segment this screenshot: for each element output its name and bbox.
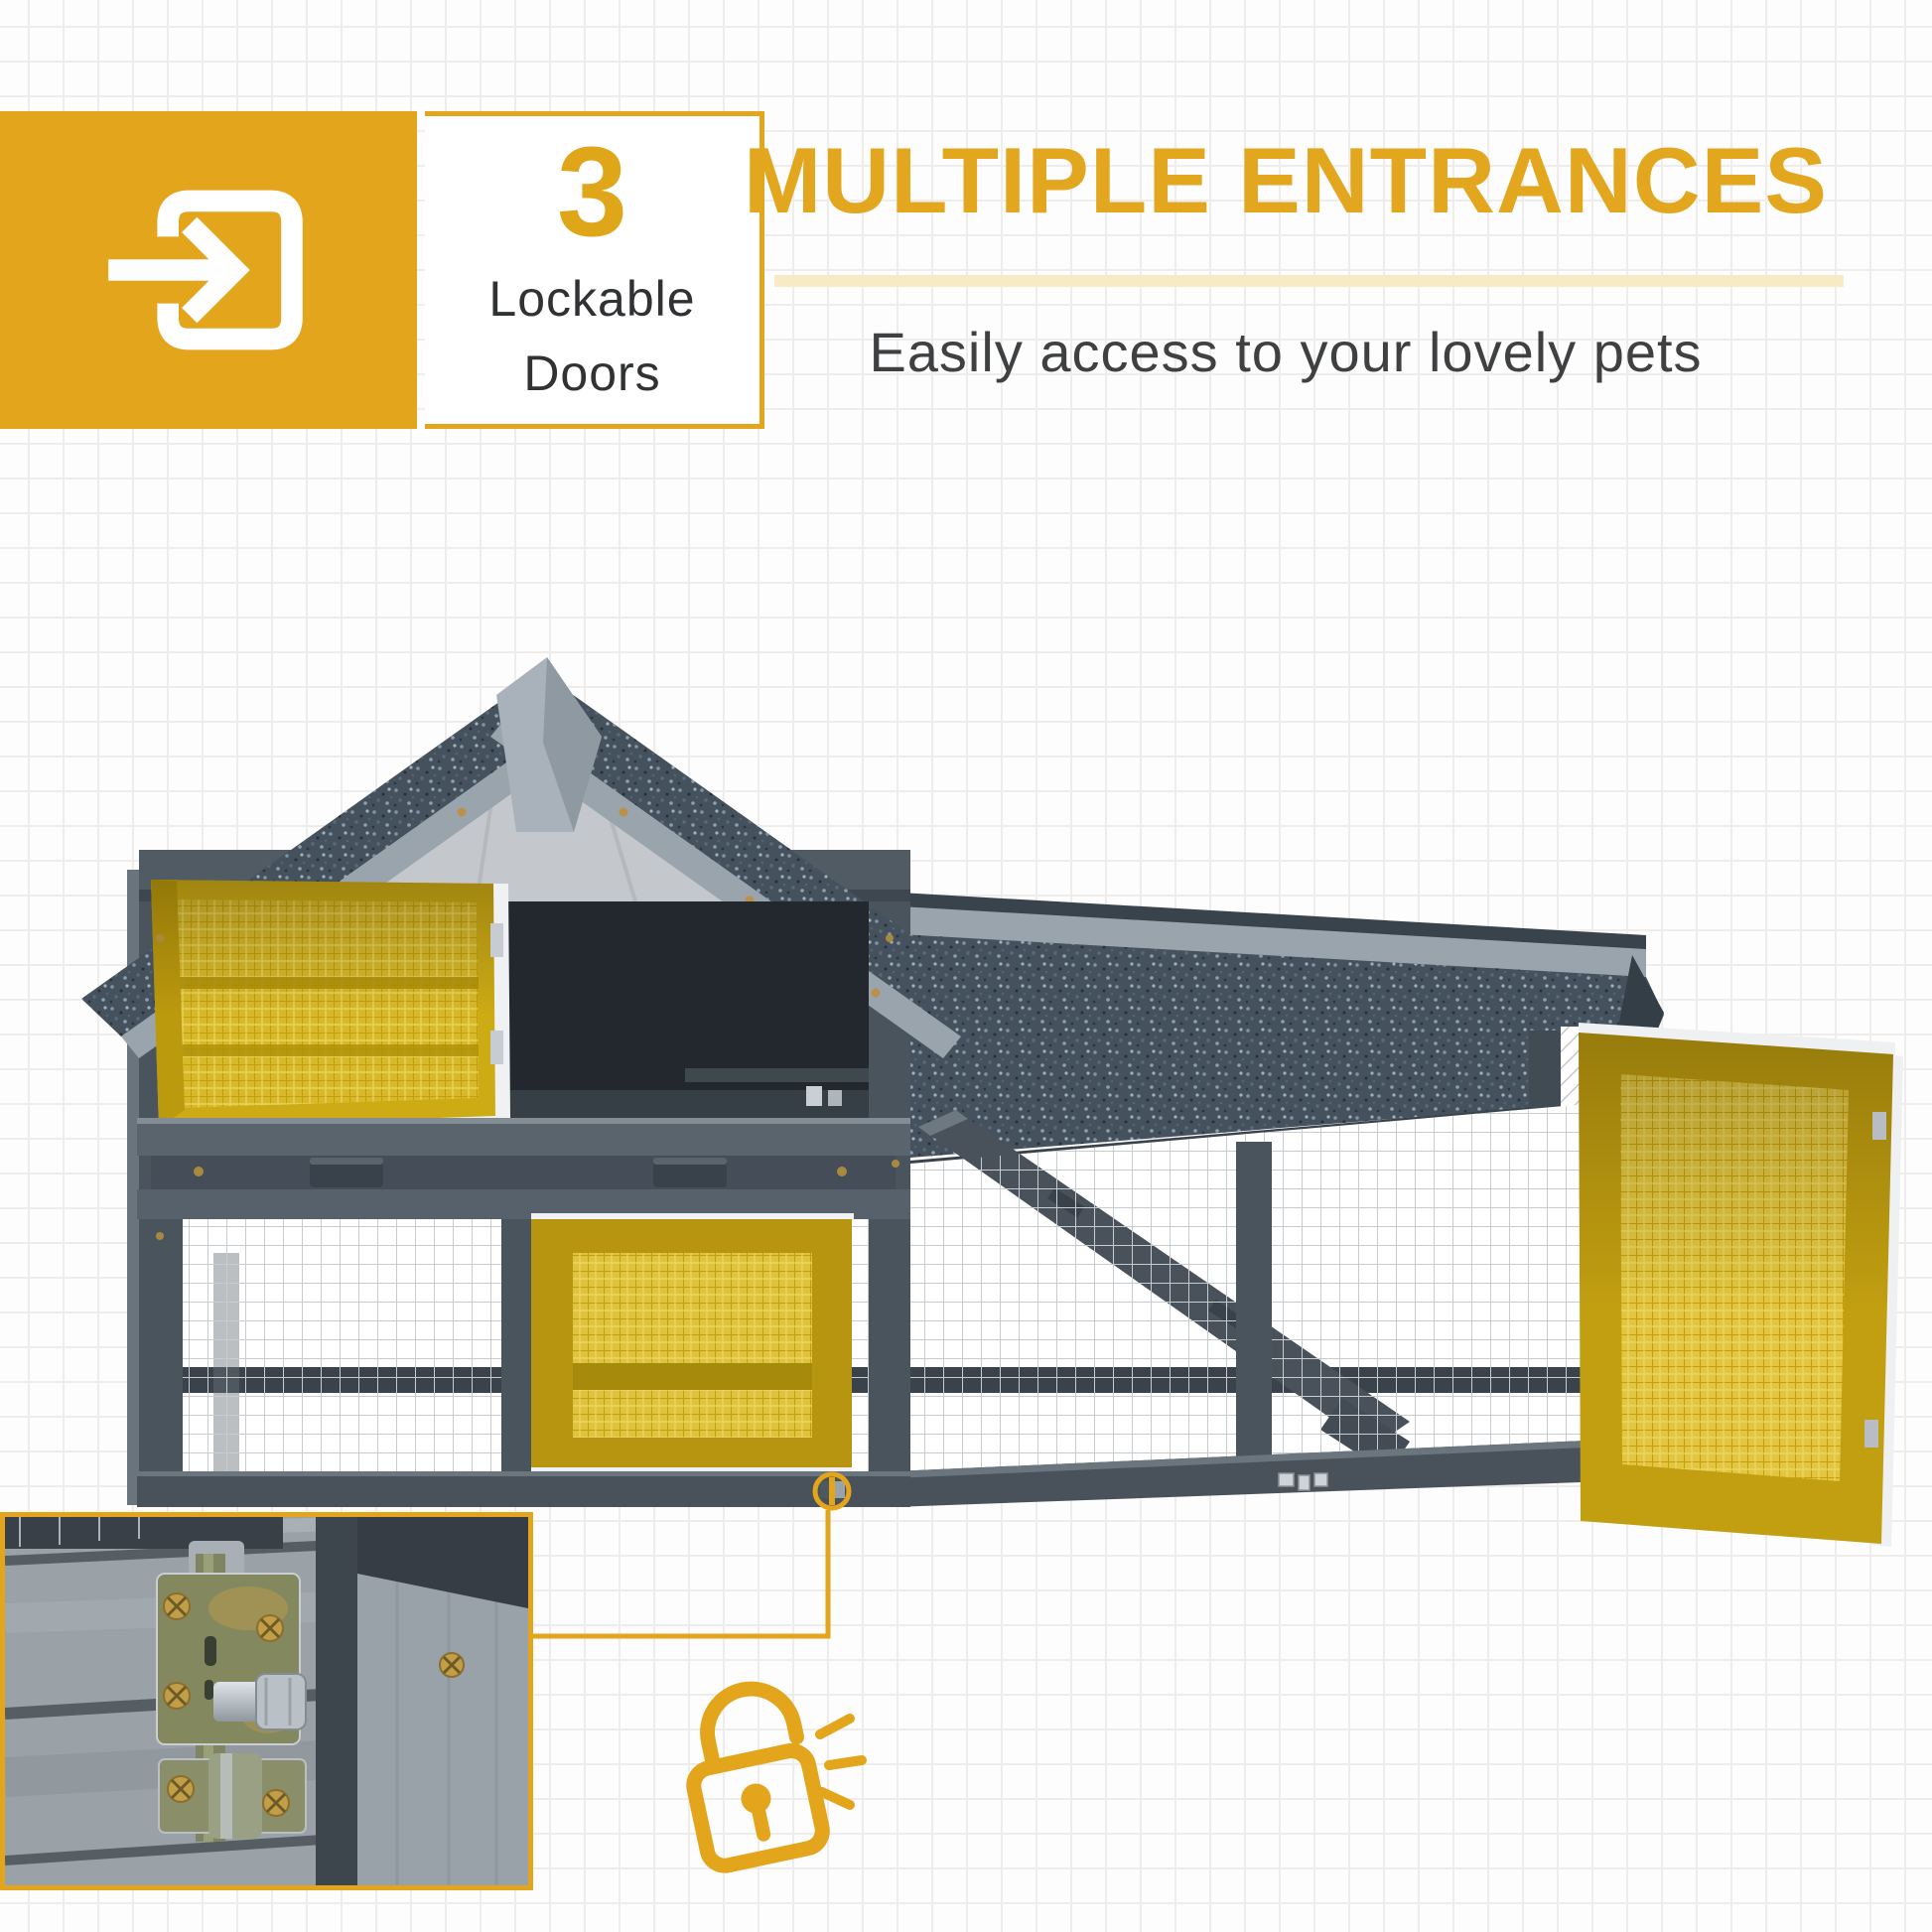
hinge-icon	[490, 923, 503, 957]
inset-slide-bolt-latch	[157, 1541, 306, 1842]
house-bottom-frame	[137, 1471, 910, 1507]
upper-door-highlighted	[151, 880, 510, 1140]
screw-icon	[164, 1593, 190, 1619]
screw-icon	[263, 1790, 289, 1816]
hutch-photo	[0, 0, 1932, 1932]
latch-plate-icon	[806, 1086, 822, 1106]
upper-opening	[506, 901, 869, 1118]
callout-connector-line	[533, 1510, 828, 1636]
hinge-icon	[490, 1031, 503, 1064]
house-section	[81, 657, 1001, 1507]
lower-door-highlighted	[531, 1213, 854, 1475]
lock-closeup-inset	[0, 1512, 533, 1890]
screw-icon	[168, 1776, 194, 1802]
hinge-icon	[1872, 1112, 1886, 1140]
run-mid-post	[1236, 1142, 1272, 1491]
run-open-door-highlighted	[1579, 1023, 1903, 1547]
inset-door-gap	[316, 1517, 357, 1885]
screw-icon	[164, 1683, 190, 1709]
click-emphasis-lines	[820, 1719, 862, 1805]
latch-highlight-circle	[815, 1474, 849, 1508]
latch-plate-icon	[828, 1090, 842, 1106]
run-section	[883, 892, 1903, 1547]
lower-mid-post	[501, 1219, 533, 1471]
screw-icon	[257, 1615, 283, 1641]
inset-frame-post	[357, 1517, 528, 1885]
hinge-icon	[1864, 1420, 1878, 1448]
infographic-canvas: 3 Lockable Doors MULTIPLE ENTRANCES Easi…	[0, 0, 1932, 1932]
tray-recess	[151, 1156, 896, 1189]
open-padlock-icon	[676, 1680, 862, 1869]
